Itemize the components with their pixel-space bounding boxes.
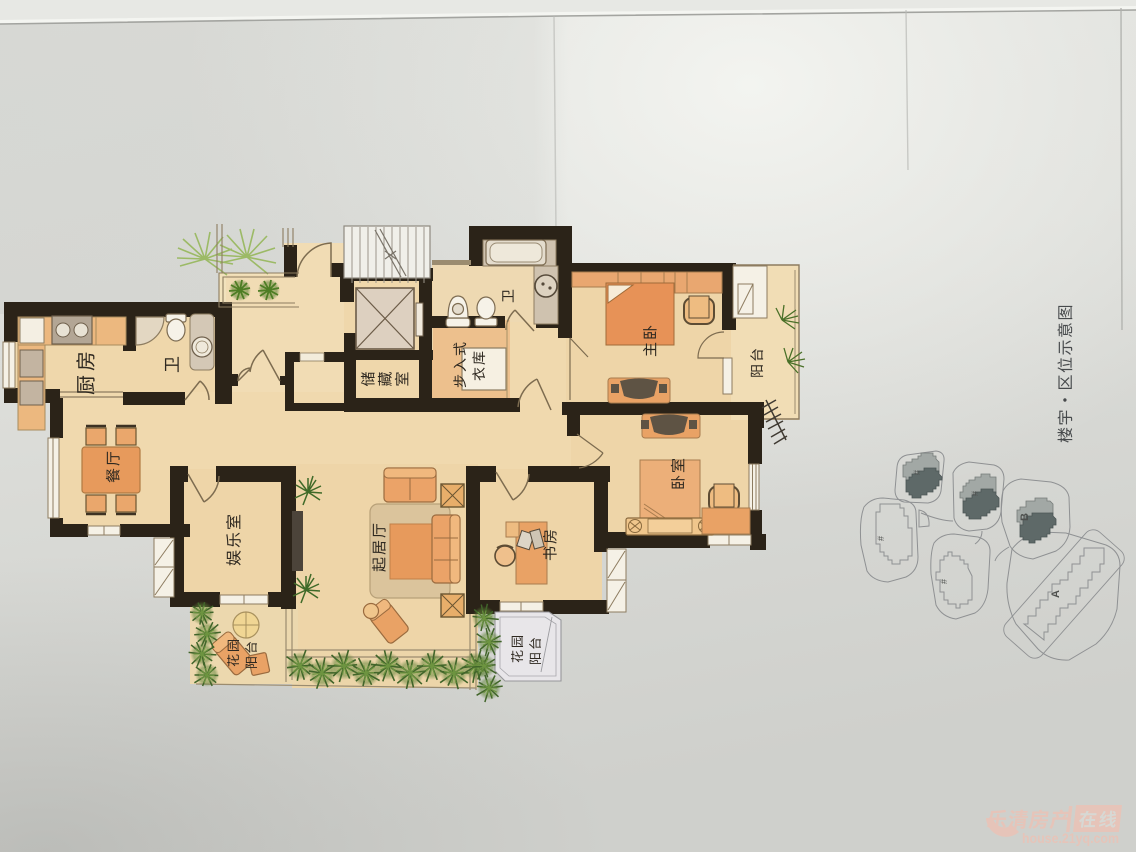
svg-text:#: # xyxy=(876,536,886,541)
svg-text:B: B xyxy=(1019,513,1031,521)
svg-text:#: # xyxy=(970,491,980,496)
svg-text:#: # xyxy=(912,470,922,475)
svg-text:house.21yq.com: house.21yq.com xyxy=(1022,831,1119,846)
svg-text:#: # xyxy=(939,579,949,584)
svg-text:A: A xyxy=(1050,590,1062,598)
